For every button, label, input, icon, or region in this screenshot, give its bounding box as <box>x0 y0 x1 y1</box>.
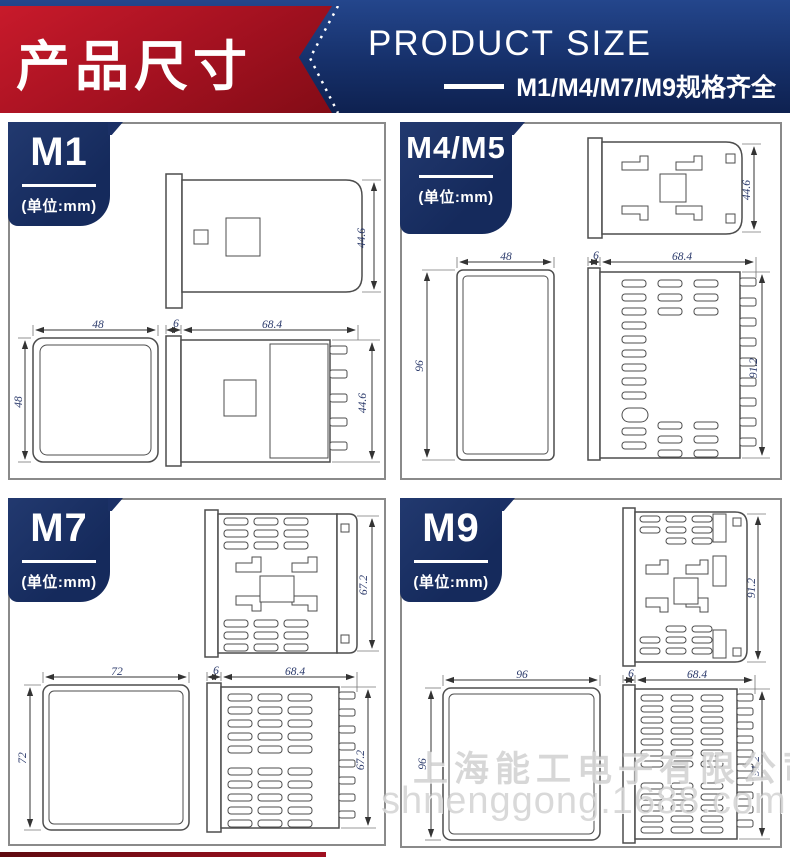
dim-front-height: 48 <box>13 396 25 408</box>
panel-m4m5-label-box: M4/M5 (单位:mm) <box>400 122 512 234</box>
panel-m1: M1 (单位:mm) <box>8 122 386 480</box>
panel-m1-label-box: M1 (单位:mm) <box>8 122 110 226</box>
label-divider <box>414 560 488 563</box>
unit-label: (单位:mm) <box>400 186 512 207</box>
dim-case-height: 44.6 <box>357 393 369 413</box>
chevron-dotted-line <box>300 6 352 113</box>
panel-m4m5: M4/M5 (单位:mm) <box>400 122 782 480</box>
dim-bezel: 6 <box>593 250 599 262</box>
dim-front-width: 48 <box>500 251 512 263</box>
model-name: M1 <box>8 130 110 175</box>
dim-bezel: 6 <box>173 318 179 330</box>
model-name: M4/M5 <box>400 130 512 166</box>
product-size-page: 产品尺寸 PRODUCT SIZE M1/M4/M7/M9规格齐全 M1 (单位… <box>0 0 790 857</box>
dim-case-height: 67.2 <box>355 750 367 770</box>
label-divider <box>419 175 493 178</box>
dim-top-height: 44.6 <box>356 228 368 248</box>
page-title-cn: 产品尺寸 <box>16 22 252 101</box>
page-title-en: PRODUCT SIZE <box>368 24 652 64</box>
dim-top-height: 44.6 <box>741 180 753 200</box>
dim-depth: 68.4 <box>672 251 692 263</box>
dim-depth: 68.4 <box>262 319 282 331</box>
header-subtitle: M1/M4/M7/M9规格齐全 <box>444 68 776 104</box>
dim-case-height: 91.2 <box>748 358 760 378</box>
dim-top-height: 91.2 <box>746 578 758 598</box>
dim-depth: 68.4 <box>285 666 305 678</box>
dim-top-height: 67.2 <box>358 575 370 595</box>
dim-front-width: 48 <box>92 319 104 331</box>
watermark-url: shnenggong.1688.com <box>381 780 787 823</box>
header-banner: 产品尺寸 PRODUCT SIZE M1/M4/M7/M9规格齐全 <box>0 0 790 113</box>
dim-depth: 68.4 <box>687 669 707 681</box>
subtitle-dash <box>444 84 504 89</box>
model-name: M7 <box>8 506 110 551</box>
dim-bezel: 6 <box>628 668 634 680</box>
next-section-edge <box>0 852 326 857</box>
label-divider <box>22 184 96 187</box>
dim-front-height: 96 <box>414 360 426 372</box>
dim-front-width: 72 <box>111 666 123 678</box>
unit-label: (单位:mm) <box>8 571 110 592</box>
panel-m7-label-box: M7 (单位:mm) <box>8 498 110 602</box>
model-name: M9 <box>400 506 502 551</box>
panel-m7: M7 (单位:mm) <box>8 498 386 846</box>
dim-front-height: 72 <box>17 752 29 764</box>
dim-bezel: 6 <box>213 665 219 677</box>
panel-m9-label-box: M9 (单位:mm) <box>400 498 502 602</box>
label-divider <box>22 560 96 563</box>
unit-label: (单位:mm) <box>8 195 110 216</box>
subtitle-text: M1/M4/M7/M9规格齐全 <box>516 68 776 104</box>
unit-label: (单位:mm) <box>400 571 502 592</box>
dim-front-width: 96 <box>516 669 528 681</box>
